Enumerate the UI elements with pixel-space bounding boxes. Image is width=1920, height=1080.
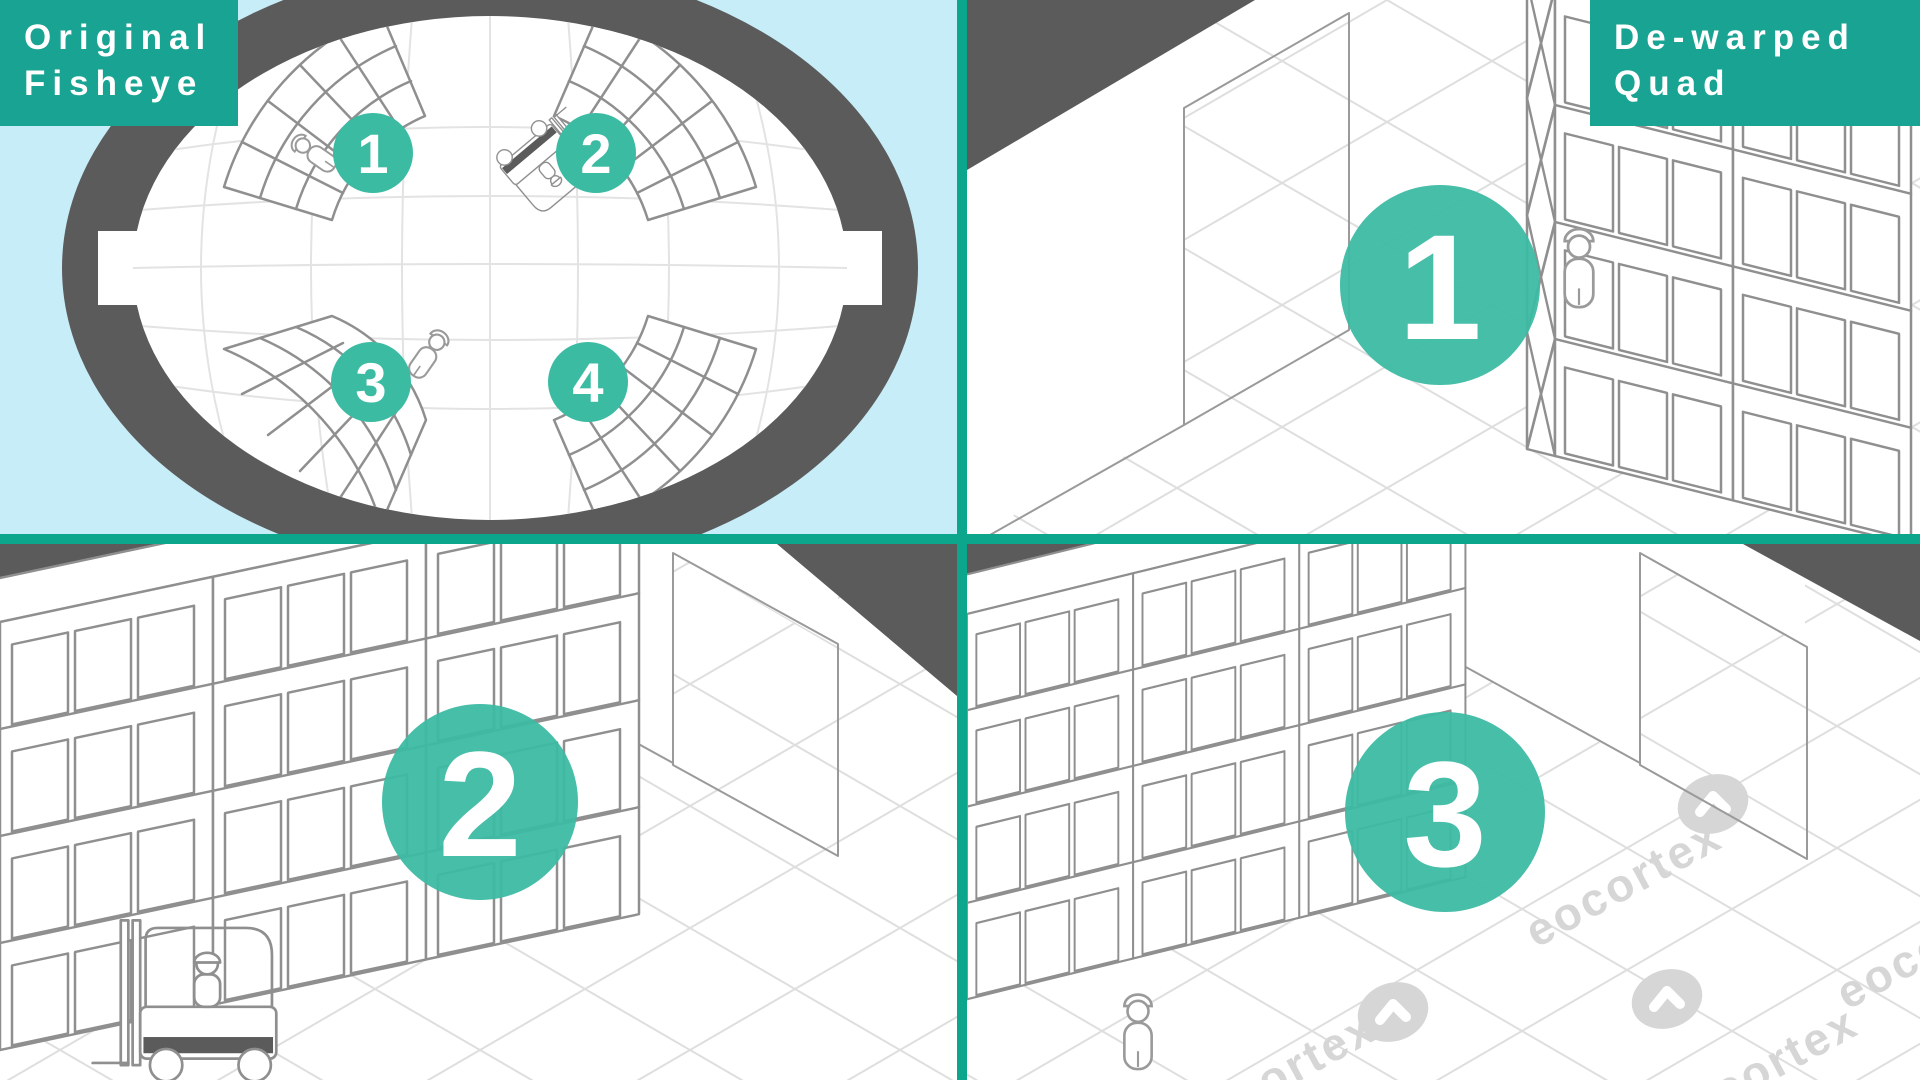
dewarped-quad-label-line2: Quad	[1614, 61, 1876, 107]
zone-marker-4: 4	[548, 342, 628, 422]
dewarped-view-3-illustration: eocortex eocortex eocortex eocortex	[967, 544, 1920, 1080]
hardhat-person-icon	[1565, 229, 1594, 307]
view-number: 1	[1398, 203, 1481, 371]
zone-marker-2: 2	[556, 113, 636, 193]
zone-marker-number: 2	[580, 122, 611, 185]
view-number-badge-2: 2	[382, 704, 578, 900]
original-fisheye-label: Original Fisheye	[0, 0, 238, 126]
panel-dewarped-view-1: 1 De-warped Quad	[967, 0, 1920, 534]
view-number: 3	[1403, 730, 1486, 898]
hardhat-person-icon	[1124, 995, 1151, 1070]
panel-original-fisheye: Original Fisheye	[0, 0, 957, 534]
original-fisheye-label-line2: Fisheye	[24, 61, 212, 107]
original-fisheye-label-line1: Original	[24, 15, 212, 61]
dewarped-quad-label: De-warped Quad	[1590, 0, 1920, 126]
panel-dewarped-view-2: 2	[0, 544, 957, 1080]
zone-marker-1: 1	[333, 113, 413, 193]
fisheye-edge-tab	[842, 231, 882, 305]
view-number-badge-3: 3	[1345, 712, 1545, 912]
panel-dewarped-view-3: eocortex eocortex eocortex eocortex	[967, 544, 1920, 1080]
fisheye-dewarp-infographic: Original Fisheye	[0, 0, 1920, 1080]
view-number-badge-1: 1	[1340, 185, 1540, 385]
zone-marker-number: 3	[355, 351, 386, 414]
zone-marker-number: 4	[572, 351, 603, 414]
zone-marker-number: 1	[357, 122, 388, 185]
view-number: 2	[438, 720, 521, 888]
dewarped-quad-label-line1: De-warped	[1614, 15, 1876, 61]
zone-marker-3: 3	[331, 342, 411, 422]
fisheye-edge-tab	[98, 231, 138, 305]
dewarped-view-2-illustration: 2	[0, 544, 957, 1080]
